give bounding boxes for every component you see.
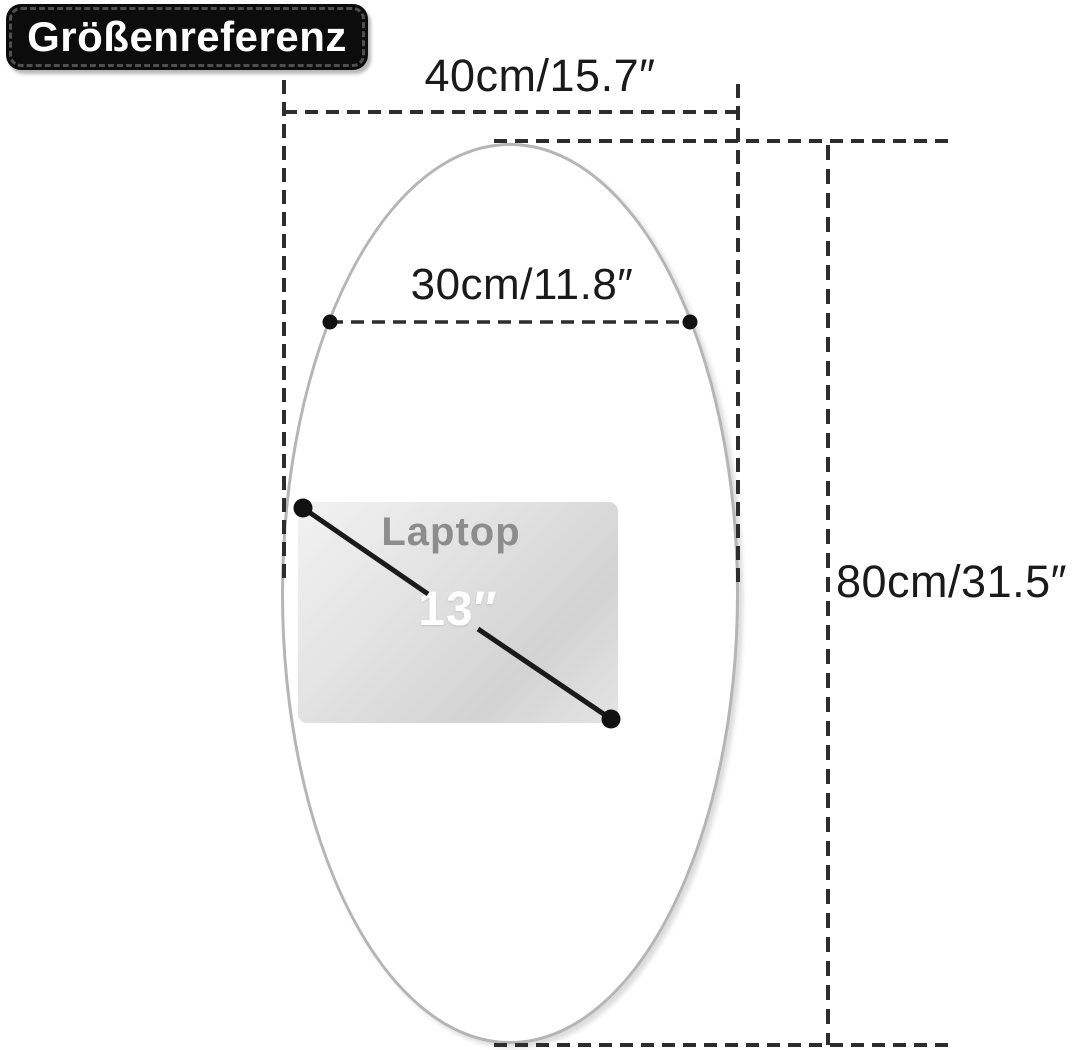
size-reference-diagram: Laptop 13″ 40cm/15.7″ 30cm/11.8″ 80cm/3: [0, 0, 1080, 1050]
size-reference-badge: Größenreferenz: [6, 4, 368, 70]
laptop-outline: Laptop 13″: [298, 502, 618, 723]
inner-width-label: 30cm/11.8″: [322, 260, 722, 310]
badge-title: Größenreferenz: [27, 13, 347, 61]
laptop-label: Laptop: [298, 510, 604, 555]
height-label: 80cm/31.5″: [836, 556, 1067, 608]
outer-width-label: 40cm/15.7″: [340, 50, 740, 102]
laptop-diagonal-size: 13″: [298, 582, 618, 637]
